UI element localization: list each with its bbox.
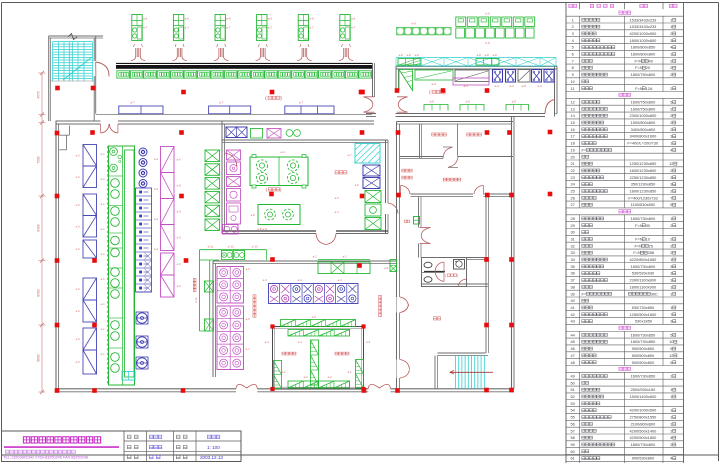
svg-text:500/500x800: 500/500x800 <box>632 360 655 365</box>
svg-text:1: 1 <box>670 52 672 57</box>
svg-text:a-9: a-9 <box>177 262 181 266</box>
svg-text:a-7: a-7 <box>143 26 148 30</box>
svg-text:a-6: a-6 <box>226 17 231 21</box>
svg-text:a-1: a-1 <box>101 152 105 156</box>
svg-text:7: 7 <box>670 312 672 317</box>
svg-text:a-9: a-9 <box>177 236 181 240</box>
svg-text:4200/1000x500: 4200/1000x500 <box>630 408 658 413</box>
svg-text:a-8: a-8 <box>521 84 526 88</box>
svg-text:56: 56 <box>571 421 575 426</box>
svg-text:a-13: a-13 <box>252 245 258 249</box>
svg-text:4200/500x1400: 4200/500x1400 <box>630 428 658 433</box>
svg-text:288: 288 <box>647 250 654 255</box>
svg-text:1600/730x850: 1600/730x850 <box>631 373 657 378</box>
svg-text:a-0: a-0 <box>76 360 80 364</box>
svg-text:a-6: a-6 <box>268 17 273 21</box>
svg-text:43: 43 <box>571 319 575 324</box>
svg-text:11: 11 <box>571 86 575 91</box>
svg-text:a-4: a-4 <box>494 84 499 88</box>
svg-text:12: 12 <box>669 161 673 166</box>
svg-text:1: 1 <box>670 291 672 296</box>
svg-text:a-6: a-6 <box>185 17 190 21</box>
svg-text:3: 3 <box>670 319 672 324</box>
svg-text:a-2: a-2 <box>343 255 347 259</box>
svg-text:a-1: a-1 <box>101 177 105 181</box>
svg-text:2300/1100x800: 2300/1100x800 <box>630 278 657 283</box>
svg-text:1: 1 <box>670 408 672 413</box>
svg-text:2: 2 <box>572 24 574 29</box>
svg-text:a-2: a-2 <box>509 84 514 88</box>
svg-text:F=N: F=N <box>635 86 643 91</box>
svg-text:a-6: a-6 <box>351 17 356 21</box>
svg-text:a-7: a-7 <box>246 347 250 351</box>
svg-text:1250/500x1600: 1250/500x1600 <box>630 312 658 317</box>
svg-text:16: 16 <box>571 127 575 132</box>
svg-text:a-7: a-7 <box>268 26 273 30</box>
svg-text:a-5: a-5 <box>463 84 468 88</box>
svg-text:a-2: a-2 <box>154 247 158 251</box>
svg-text:a-8: a-8 <box>485 53 490 57</box>
svg-text:530x1850: 530x1850 <box>635 319 653 324</box>
svg-text:a-8: a-8 <box>466 100 471 104</box>
svg-text:2: 2 <box>670 243 672 248</box>
svg-text:F=400/1230x733: F=400/1230x733 <box>628 195 657 200</box>
svg-text:3: 3 <box>670 175 672 180</box>
svg-text:4570: 4570 <box>37 91 41 98</box>
svg-text:7300: 7300 <box>37 156 41 163</box>
svg-text:a-4: a-4 <box>366 340 370 344</box>
svg-text:F=N: F=N <box>633 250 641 255</box>
svg-text:57: 57 <box>571 428 575 433</box>
svg-text:a-2: a-2 <box>154 217 158 221</box>
svg-text:a-1: a-1 <box>101 277 105 281</box>
svg-text:a-12: a-12 <box>228 245 234 249</box>
svg-text:1800/750x800: 1800/750x800 <box>631 72 657 77</box>
svg-text:a-0: a-0 <box>76 309 80 313</box>
svg-text:39: 39 <box>571 291 575 296</box>
svg-text:a-1: a-1 <box>348 370 352 374</box>
svg-text:28: 28 <box>571 216 575 221</box>
svg-text:2: 2 <box>670 65 672 70</box>
svg-text:1600/730x800: 1600/730x800 <box>631 264 657 269</box>
svg-text:12: 12 <box>669 353 673 358</box>
svg-text:a-6: a-6 <box>309 17 314 21</box>
svg-text:2750/800x1550: 2750/800x1550 <box>630 415 658 420</box>
svg-text:3400/800x1600: 3400/800x1600 <box>630 134 658 139</box>
svg-text:a-9: a-9 <box>384 266 388 270</box>
svg-text:3: 3 <box>670 38 672 43</box>
svg-text:900/500x800: 900/500x800 <box>632 346 655 351</box>
svg-text:48: 48 <box>571 360 575 365</box>
svg-text:2: 2 <box>670 106 672 111</box>
svg-text:2: 2 <box>670 250 672 255</box>
svg-text:1250/1230x850: 1250/1230x850 <box>630 161 658 166</box>
svg-text:a-0: a-0 <box>76 175 80 179</box>
svg-text:2003.12.13: 2003.12.13 <box>200 455 223 460</box>
svg-text:F=N: F=N <box>635 223 643 228</box>
svg-text:1: 1 <box>670 415 672 420</box>
svg-text:37: 37 <box>571 278 575 283</box>
svg-text:6: 6 <box>572 52 574 57</box>
svg-text:a-1: a-1 <box>101 252 105 256</box>
svg-text:2300/1000x800: 2300/1000x800 <box>630 113 658 118</box>
svg-text:a-4: a-4 <box>335 210 339 214</box>
svg-text:7: 7 <box>572 58 574 63</box>
svg-text:a-7: a-7 <box>226 26 231 30</box>
svg-text:1600/750x800: 1600/750x800 <box>631 99 657 104</box>
svg-text:F=400/L=200/730: F=400/L=200/730 <box>627 141 659 146</box>
svg-text:55: 55 <box>571 415 575 420</box>
svg-text:a-8: a-8 <box>407 53 412 57</box>
svg-text:7: 7 <box>670 195 672 200</box>
svg-text:2: 2 <box>670 189 672 194</box>
svg-text:8: 8 <box>572 65 574 70</box>
svg-text:49: 49 <box>571 373 575 378</box>
svg-text:52: 52 <box>571 394 575 399</box>
svg-text:12: 12 <box>571 99 575 104</box>
svg-text:a-1: a-1 <box>101 302 105 306</box>
svg-text:13: 13 <box>571 106 575 111</box>
svg-text:3400/800x800: 3400/800x800 <box>631 127 657 132</box>
svg-text:2: 2 <box>670 86 672 91</box>
svg-text:a-2: a-2 <box>328 375 332 379</box>
svg-text:900/530x800: 900/530x800 <box>632 456 655 461</box>
svg-text:26: 26 <box>571 195 575 200</box>
svg-text:a-7: a-7 <box>185 26 190 30</box>
svg-text:53: 53 <box>571 401 575 406</box>
svg-text:a-5: a-5 <box>246 267 250 271</box>
svg-text:22: 22 <box>571 168 575 173</box>
svg-text:47: 47 <box>571 353 575 358</box>
svg-text:1533/3433x233: 1533/3433x233 <box>630 24 657 29</box>
svg-text:a-11: a-11 <box>208 245 214 249</box>
svg-text:42: 42 <box>571 312 575 317</box>
svg-text:a-8: a-8 <box>399 53 404 57</box>
svg-text:2: 2 <box>670 168 672 173</box>
svg-text:45: 45 <box>571 339 575 344</box>
svg-text:a-0: a-0 <box>76 153 80 157</box>
svg-text:2100/800x800: 2100/800x800 <box>631 421 657 426</box>
svg-text:a-9: a-9 <box>177 210 181 214</box>
svg-text:a-9: a-9 <box>177 184 181 188</box>
svg-text:a-1: a-1 <box>101 327 105 331</box>
svg-text:15: 15 <box>571 120 575 125</box>
svg-text:5: 5 <box>670 346 672 351</box>
svg-text:a-7: a-7 <box>299 101 304 105</box>
svg-text:5: 5 <box>670 332 672 337</box>
svg-text:58: 58 <box>571 435 575 440</box>
svg-text:1500/800x800: 1500/800x800 <box>631 120 657 125</box>
svg-text:17: 17 <box>571 134 575 139</box>
svg-text:2: 2 <box>670 127 672 132</box>
svg-text:36: 36 <box>571 271 575 276</box>
svg-text:2: 2 <box>670 442 672 447</box>
svg-text:3: 3 <box>670 278 672 283</box>
svg-text:12A: 12A <box>646 86 653 91</box>
svg-text:51: 51 <box>571 387 575 392</box>
svg-text:a-9: a-9 <box>431 82 436 86</box>
svg-text:a-6: a-6 <box>143 17 148 21</box>
svg-text:1: 1 <box>670 24 672 29</box>
svg-text:31: 31 <box>571 236 575 241</box>
svg-text:a-7: a-7 <box>309 26 314 30</box>
svg-text:2250/1230x850: 2250/1230x850 <box>630 175 658 180</box>
svg-text:a-0: a-0 <box>76 337 80 341</box>
svg-text:9: 9 <box>572 72 574 77</box>
svg-text:2: 2 <box>670 31 672 36</box>
svg-text:2: 2 <box>670 113 672 118</box>
svg-text:a-0: a-0 <box>76 247 80 251</box>
svg-text:46: 46 <box>571 346 575 351</box>
svg-text:a-0: a-0 <box>76 287 80 291</box>
svg-text:a-3: a-3 <box>263 278 267 282</box>
svg-text:5: 5 <box>670 99 672 104</box>
svg-text:25: 25 <box>649 243 653 248</box>
svg-text:a-8 a-9: a-8 a-9 <box>257 227 267 231</box>
svg-text:1600/750x800: 1600/750x800 <box>631 106 657 111</box>
svg-text:a-8: a-8 <box>415 53 420 57</box>
svg-text:35: 35 <box>571 264 575 269</box>
svg-text:2: 2 <box>670 223 672 228</box>
svg-text:4200/500x1800: 4200/500x1800 <box>630 435 658 440</box>
svg-text:21: 21 <box>571 161 575 166</box>
svg-text:a-2: a-2 <box>304 375 308 379</box>
svg-text:5: 5 <box>670 360 672 365</box>
svg-text:1: 1 <box>670 216 672 221</box>
svg-text:59: 59 <box>571 442 575 447</box>
svg-text:5: 5 <box>670 202 672 207</box>
svg-text:350/1230x850: 350/1230x850 <box>631 182 657 187</box>
svg-text:a-0: a-0 <box>76 203 80 207</box>
svg-text:a-5: a-5 <box>335 196 339 200</box>
svg-text:3: 3 <box>670 182 672 187</box>
svg-text:500/500x800: 500/500x800 <box>632 353 655 358</box>
svg-text:a-7: a-7 <box>130 101 135 105</box>
svg-text:6400: 6400 <box>37 289 41 296</box>
svg-text:2: 2 <box>670 58 672 63</box>
svg-text:1800/1000x800: 1800/1000x800 <box>630 38 658 43</box>
svg-text:a-9: a-9 <box>177 284 181 288</box>
svg-text:a-8: a-8 <box>251 213 255 217</box>
svg-text:1: 1 <box>670 387 672 392</box>
svg-text:41: 41 <box>571 305 575 310</box>
svg-text:3: 3 <box>670 271 672 276</box>
svg-text:1800/1230x850: 1800/1230x850 <box>630 189 658 194</box>
svg-text:5: 5 <box>572 45 574 50</box>
svg-text:a-1: a-1 <box>101 227 105 231</box>
svg-text:a-4: a-4 <box>298 278 302 282</box>
svg-text:a-1: a-1 <box>101 352 105 356</box>
svg-text:530/530x930: 530/530x930 <box>632 271 655 276</box>
svg-text:a-8: a-8 <box>493 53 498 57</box>
svg-text:32: 32 <box>571 243 575 248</box>
svg-text:a-8: a-8 <box>477 53 482 57</box>
svg-text:a-8: a-8 <box>430 100 435 104</box>
svg-text:a-6: a-6 <box>355 183 359 187</box>
svg-text:b-8: b-8 <box>411 22 416 26</box>
svg-text:3: 3 <box>572 31 574 36</box>
svg-text:19: 19 <box>571 147 575 152</box>
svg-text:23: 23 <box>571 175 575 180</box>
svg-text:1800/1100x900: 1800/1100x900 <box>630 284 657 289</box>
svg-text:1600/730x800: 1600/730x800 <box>631 216 657 221</box>
svg-text:a-6: a-6 <box>246 317 250 321</box>
svg-text:1800/730x800: 1800/730x800 <box>631 442 657 447</box>
svg-text:61: 61 <box>571 456 575 461</box>
svg-text:1600/1230x800: 1600/1230x800 <box>630 168 658 173</box>
svg-text:6400: 6400 <box>37 224 41 231</box>
svg-text:a-1: a-1 <box>101 202 105 206</box>
svg-text:b-6: b-6 <box>485 12 490 16</box>
svg-text:3: 3 <box>670 264 672 269</box>
svg-text:a-8: a-8 <box>512 100 517 104</box>
svg-text:25: 25 <box>571 189 575 194</box>
svg-text:F=N: F=N <box>634 243 642 248</box>
svg-text:F=N: F=N <box>634 58 642 63</box>
svg-text:1: 1 <box>670 284 672 289</box>
svg-text:a-5: a-5 <box>312 315 316 319</box>
svg-text:4220/850x1650: 4220/850x1650 <box>630 257 658 262</box>
svg-text:a-0: a-0 <box>76 224 80 228</box>
svg-text:a-1: a-1 <box>282 370 286 374</box>
svg-text:a-4: a-4 <box>280 150 285 154</box>
svg-text:18: 18 <box>571 141 575 146</box>
svg-text:): ) <box>457 274 458 278</box>
svg-text:1: 1 <box>670 257 672 262</box>
svg-text:a-9: a-9 <box>177 158 181 162</box>
svg-text:3: 3 <box>670 134 672 139</box>
svg-text:F=N: F=N <box>635 65 643 70</box>
svg-text:6600: 6600 <box>37 354 41 361</box>
svg-text:30C: 30C <box>651 291 658 296</box>
svg-text:1150/530x850: 1150/530x850 <box>631 202 656 207</box>
svg-text:F=N: F=N <box>635 236 643 241</box>
svg-text:2: 2 <box>670 72 672 77</box>
svg-text:1: 1 <box>670 421 672 426</box>
svg-text:530/730x850: 530/730x850 <box>632 305 655 310</box>
svg-text:1: 1 <box>670 373 672 378</box>
svg-text:1: 1 <box>670 17 672 22</box>
svg-text:1: 1 <box>572 17 574 22</box>
svg-text:1800/730x850: 1800/730x850 <box>631 339 657 344</box>
svg-text:1: 1 <box>670 141 672 146</box>
svg-text:a-4: a-4 <box>338 278 342 282</box>
svg-text:a-7: a-7 <box>348 153 352 157</box>
svg-text:27: 27 <box>571 202 575 207</box>
svg-text:2: 2 <box>670 428 672 433</box>
svg-text:a-4: a-4 <box>298 340 302 344</box>
svg-text:1: 1 <box>670 394 672 399</box>
svg-text:a-2: a-2 <box>154 157 158 161</box>
svg-text:1: 100: 1: 100 <box>207 445 220 450</box>
svg-text:TEL:13509802342 0769-83250245: TEL:13509802342 0769-83250245 FAX:832502… <box>3 456 88 460</box>
svg-text:1: 1 <box>670 305 672 310</box>
svg-text:38: 38 <box>571 284 575 289</box>
svg-text:2: 2 <box>670 120 672 125</box>
svg-text:1800/800x850: 1800/800x850 <box>631 45 657 50</box>
svg-text:29: 29 <box>571 223 575 228</box>
svg-text:a-7: a-7 <box>219 101 224 105</box>
svg-text:1533/3433x233: 1533/3433x233 <box>630 17 657 22</box>
svg-text:2500/530x150: 2500/530x150 <box>631 387 657 392</box>
svg-text:2: 2 <box>670 236 672 241</box>
svg-text:33: 33 <box>571 250 575 255</box>
svg-text:b-8: b-8 <box>485 41 490 45</box>
svg-text:1600/730x850: 1600/730x850 <box>631 332 657 337</box>
svg-text:1800/800x800: 1800/800x800 <box>631 52 657 57</box>
svg-text:1500/1400x800: 1500/1400x800 <box>630 394 658 399</box>
svg-text:a-2: a-2 <box>154 187 158 191</box>
svg-text:a-3: a-3 <box>537 84 542 88</box>
svg-text:a-4: a-4 <box>265 340 269 344</box>
svg-text:4200/1000x500: 4200/1000x500 <box>630 31 658 36</box>
svg-text:a-2: a-2 <box>313 255 317 259</box>
svg-text:a-7: a-7 <box>351 26 356 30</box>
svg-text:a-14: a-14 <box>194 297 198 303</box>
